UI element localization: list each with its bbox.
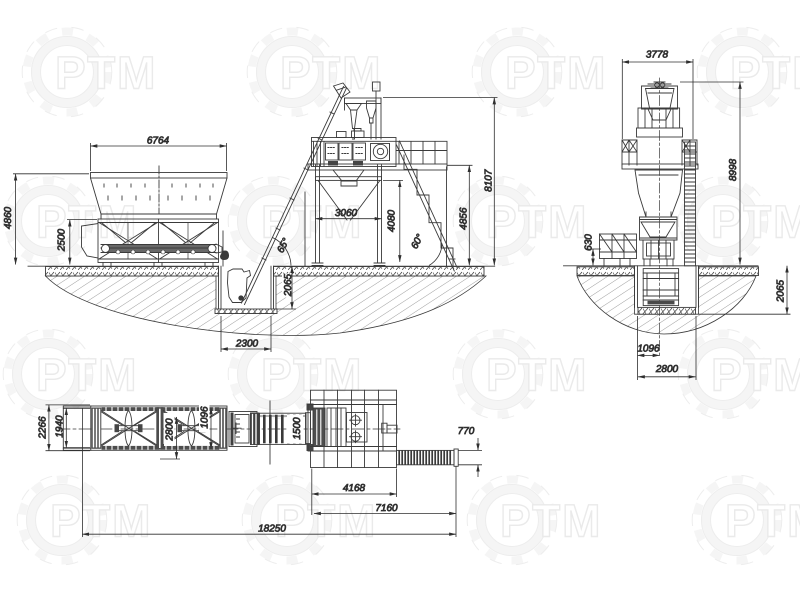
svg-text:8107: 8107 — [484, 169, 495, 192]
svg-text:2266: 2266 — [38, 416, 49, 440]
svg-text:2065: 2065 — [283, 273, 294, 297]
svg-text:2800: 2800 — [655, 364, 679, 375]
svg-text:18250: 18250 — [258, 524, 286, 535]
svg-text:770: 770 — [458, 426, 475, 437]
svg-text:7160: 7160 — [375, 503, 398, 514]
svg-text:2065: 2065 — [776, 279, 787, 303]
svg-text:6764: 6764 — [147, 136, 170, 147]
svg-text:1500: 1500 — [292, 417, 303, 440]
svg-text:2300: 2300 — [235, 339, 259, 350]
svg-text:3778: 3778 — [646, 50, 669, 61]
svg-text:2800: 2800 — [165, 418, 176, 442]
svg-text:4080: 4080 — [387, 209, 398, 232]
svg-text:4856: 4856 — [459, 207, 470, 230]
svg-text:4860: 4860 — [3, 206, 14, 229]
svg-text:3060: 3060 — [335, 208, 358, 219]
svg-text:1096: 1096 — [637, 344, 660, 355]
svg-text:8998: 8998 — [728, 158, 739, 181]
svg-text:1096: 1096 — [200, 406, 211, 429]
svg-text:1940: 1940 — [55, 415, 66, 438]
svg-text:2500: 2500 — [57, 228, 68, 252]
svg-text:630: 630 — [584, 234, 595, 251]
svg-text:4168: 4168 — [343, 483, 366, 494]
